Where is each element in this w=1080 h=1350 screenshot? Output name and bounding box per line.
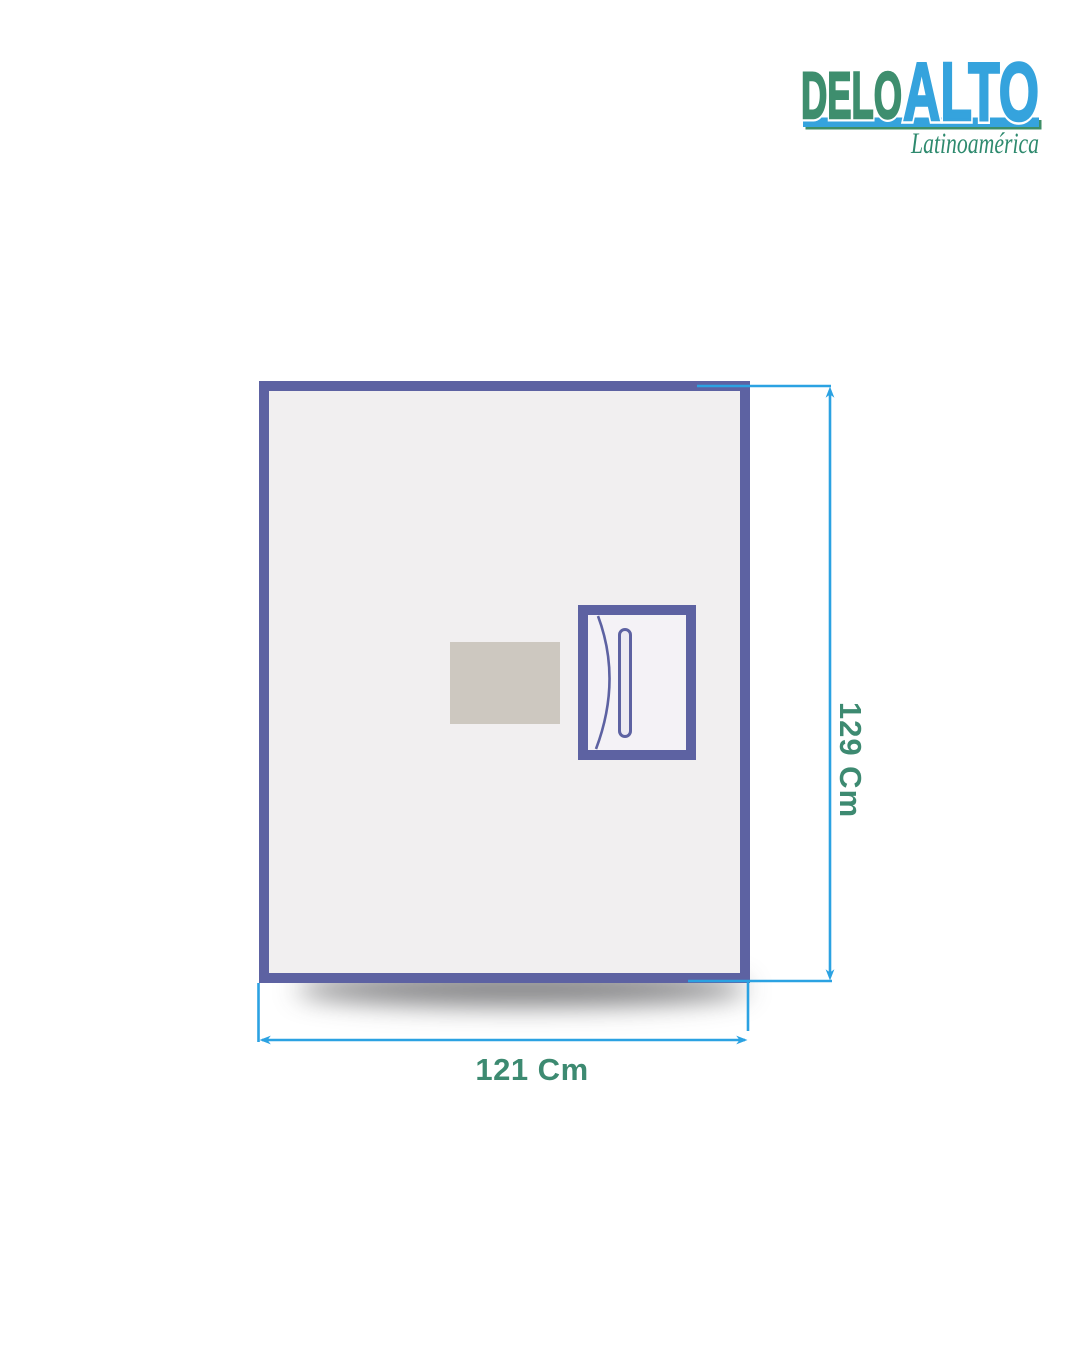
- svg-text:DELO: DELO: [801, 58, 902, 132]
- svg-text:ALTO: ALTO: [903, 45, 1039, 138]
- svg-text:Latinoamérica: Latinoamérica: [910, 127, 1039, 160]
